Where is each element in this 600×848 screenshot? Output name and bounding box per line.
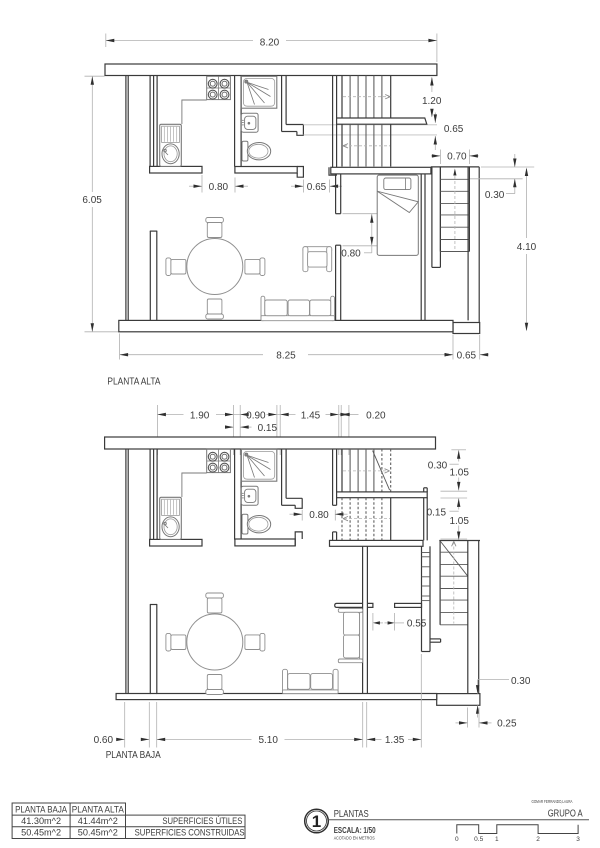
svg-text:0.60: 0.60 bbox=[94, 735, 114, 746]
svg-text:0.65: 0.65 bbox=[307, 182, 327, 193]
svg-text:0.90: 0.90 bbox=[246, 410, 266, 421]
svg-text:1.90: 1.90 bbox=[190, 410, 210, 421]
svg-text:GOMAR FERRANDO,LAURA: GOMAR FERRANDO,LAURA bbox=[532, 799, 573, 804]
svg-text:0.30: 0.30 bbox=[485, 190, 505, 201]
svg-text:6.05: 6.05 bbox=[82, 195, 102, 206]
svg-text:0.65: 0.65 bbox=[457, 350, 477, 361]
svg-text:1.45: 1.45 bbox=[301, 410, 321, 421]
svg-text:PLANTA ALTA: PLANTA ALTA bbox=[72, 804, 124, 814]
svg-text:0: 0 bbox=[455, 836, 459, 843]
svg-text:0.80: 0.80 bbox=[209, 182, 229, 193]
svg-text:1.20: 1.20 bbox=[422, 96, 442, 107]
svg-text:0.80: 0.80 bbox=[309, 510, 329, 521]
svg-text:0.70: 0.70 bbox=[447, 152, 467, 163]
svg-text:0.20: 0.20 bbox=[366, 410, 386, 421]
svg-text:0.15: 0.15 bbox=[427, 508, 447, 519]
svg-text:0.25: 0.25 bbox=[497, 719, 517, 730]
svg-text:0.15: 0.15 bbox=[258, 423, 278, 434]
svg-text:1.05: 1.05 bbox=[449, 468, 469, 479]
svg-text:0.80: 0.80 bbox=[341, 248, 361, 259]
svg-text:0.65: 0.65 bbox=[444, 124, 464, 135]
svg-text:8.25: 8.25 bbox=[276, 350, 296, 361]
svg-text:41.44m^2: 41.44m^2 bbox=[78, 816, 118, 826]
svg-text:5.10: 5.10 bbox=[258, 735, 278, 746]
svg-text:ACOTADO EN METROS: ACOTADO EN METROS bbox=[334, 835, 375, 840]
svg-text:0.30: 0.30 bbox=[428, 460, 448, 471]
svg-text:0.30: 0.30 bbox=[511, 676, 531, 687]
svg-text:SUPERFICIES CONSTRUIDAS: SUPERFICIES CONSTRUIDAS bbox=[135, 828, 245, 838]
svg-text:GRUPO A: GRUPO A bbox=[548, 809, 583, 820]
svg-text:50.45m^2: 50.45m^2 bbox=[21, 828, 61, 838]
svg-text:0.5: 0.5 bbox=[474, 836, 483, 843]
svg-text:1.05: 1.05 bbox=[449, 516, 469, 527]
svg-text:1.35: 1.35 bbox=[385, 735, 405, 746]
svg-text:1: 1 bbox=[312, 812, 321, 831]
svg-text:0.55: 0.55 bbox=[407, 619, 427, 630]
svg-text:PLANTA BAJA: PLANTA BAJA bbox=[15, 804, 67, 814]
svg-text:PLANTAS: PLANTAS bbox=[334, 809, 369, 820]
svg-text:PLANTA ALTA: PLANTA ALTA bbox=[107, 376, 160, 387]
svg-text:41.30m^2: 41.30m^2 bbox=[21, 816, 61, 826]
svg-text:4.10: 4.10 bbox=[517, 242, 537, 253]
svg-text:1: 1 bbox=[495, 836, 499, 843]
svg-text:PLANTA BAJA: PLANTA BAJA bbox=[106, 750, 161, 761]
svg-text:SUPERFICIES ÚTILES: SUPERFICIES ÚTILES bbox=[162, 816, 242, 826]
svg-text:ESCALA: 1/50: ESCALA: 1/50 bbox=[334, 826, 376, 835]
svg-text:50.45m^2: 50.45m^2 bbox=[78, 828, 118, 838]
svg-text:3: 3 bbox=[576, 836, 580, 843]
svg-text:2: 2 bbox=[536, 836, 540, 843]
svg-text:8.20: 8.20 bbox=[260, 37, 280, 48]
